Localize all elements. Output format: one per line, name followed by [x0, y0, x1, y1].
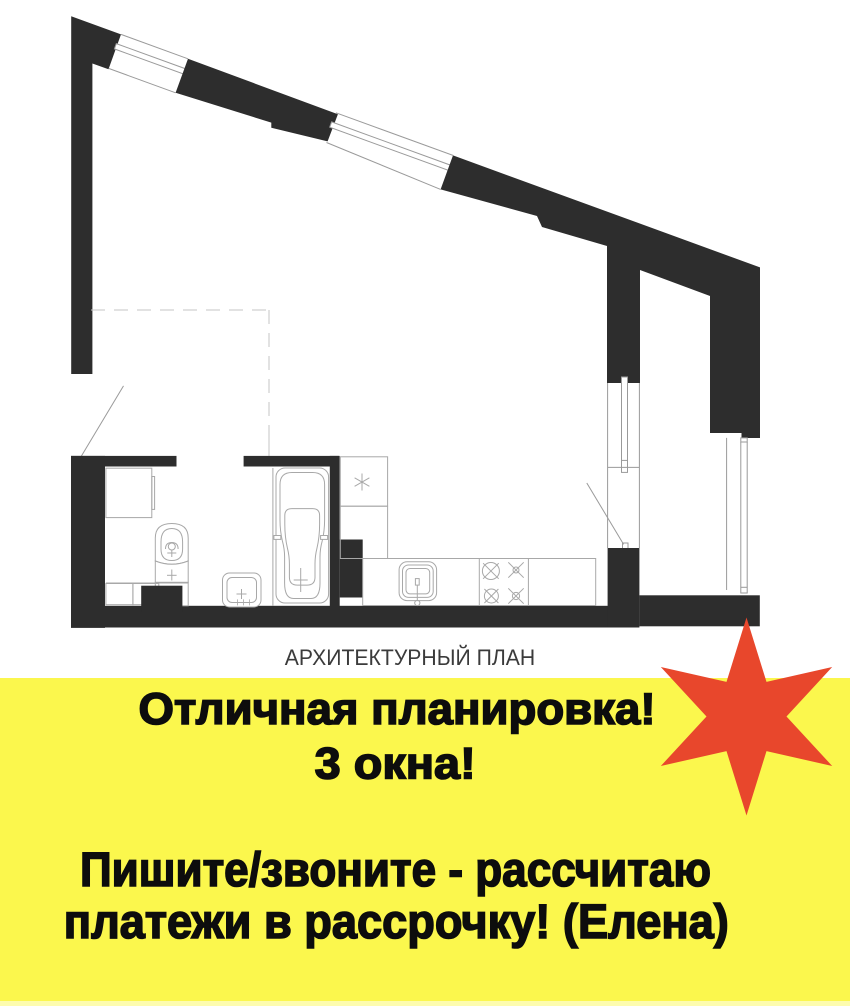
svg-text:3 окна!: 3 окна! — [315, 740, 476, 789]
svg-text:платежи в рассрочку! (Елена): платежи в рассрочку! (Елена) — [64, 896, 729, 949]
svg-text:Пишите/звоните - рассчитаю: Пишите/звоните - рассчитаю — [80, 844, 711, 897]
svg-text:АРХИТЕКТУРНЫЙ ПЛАН: АРХИТЕКТУРНЫЙ ПЛАН — [285, 645, 535, 670]
svg-text:Отличная планировка!: Отличная планировка! — [139, 685, 656, 734]
